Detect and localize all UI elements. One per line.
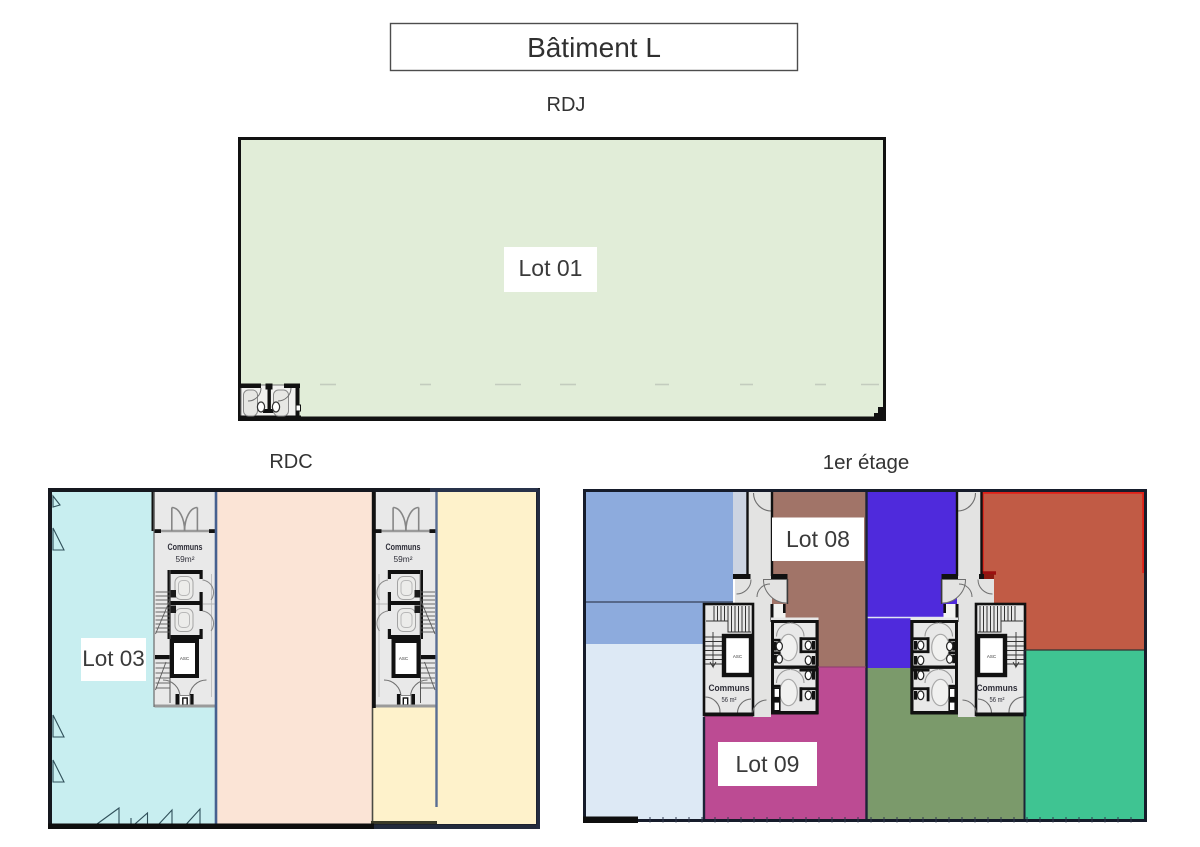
svg-text:Lot 03: Lot 03 [82,646,145,671]
svg-text:Lot 08: Lot 08 [786,526,850,552]
svg-text:ASC: ASC [987,654,997,659]
svg-text:Communs: Communs [709,683,750,693]
svg-text:Lot 09: Lot 09 [736,751,800,777]
svg-text:ASC: ASC [733,654,743,659]
svg-text:Lot 01: Lot 01 [519,255,583,281]
svg-text:Bâtiment L: Bâtiment L [527,32,661,63]
svg-text:Communs: Communs [168,542,203,552]
svg-text:Communs: Communs [386,542,421,552]
svg-text:ASC: ASC [180,656,190,661]
svg-text:RDC: RDC [269,451,312,473]
svg-text:59m²: 59m² [394,555,413,564]
svg-text:56 m²: 56 m² [990,697,1006,704]
svg-text:59m²: 59m² [176,555,195,564]
svg-text:ASC: ASC [399,656,409,661]
svg-text:Communs: Communs [977,683,1018,693]
svg-text:RDJ: RDJ [547,94,586,116]
svg-text:1er étage: 1er étage [823,451,910,474]
svg-text:56 m²: 56 m² [722,697,738,704]
